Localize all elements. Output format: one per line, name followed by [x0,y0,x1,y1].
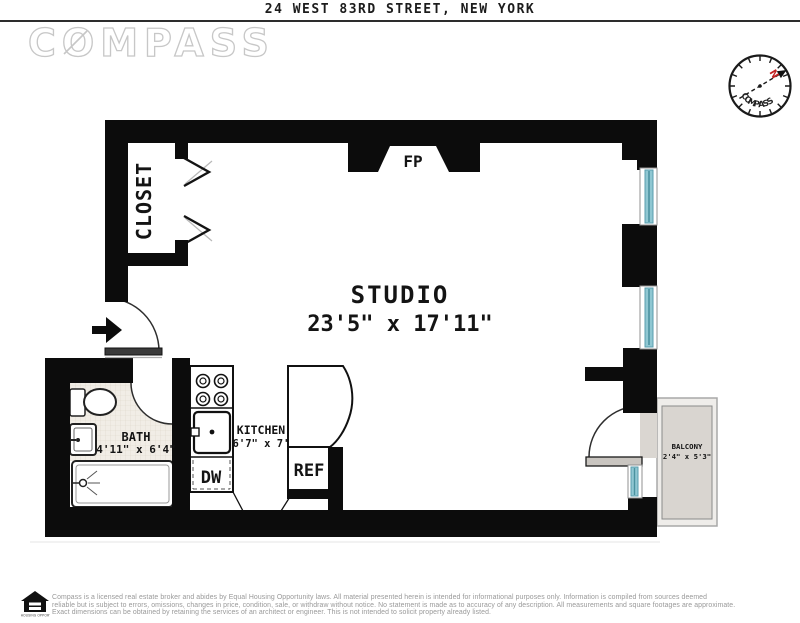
window-3 [628,465,642,498]
wall-refrigerator-right [328,447,343,513]
floor-plan-page: 24 WEST 83RD STREET, NEW YORK COMPASS N … [0,0,800,623]
dishwasher-label: DW [201,468,222,488]
kitchen-sink [191,412,230,453]
wall-bath-top [45,358,133,383]
disclaimer-line: Exact dimensions can be obtained by reta… [52,609,792,617]
wall-refrigerator-bottom [287,490,343,499]
balcony-door-swing [589,406,640,457]
wall-top [105,120,657,143]
wall-bath-kitchen [172,358,190,513]
wall-left-upper [105,120,128,302]
kitchen-label: KITCHEN [237,423,286,437]
bath-sink [66,424,96,455]
bath-dimensions: 4'11" x 6'4" [96,443,175,456]
disclaimer-line: reliable but is subject to errors, omiss… [52,602,792,610]
window-1 [640,168,657,225]
balcony-door-opening [640,413,657,458]
wall-bottom [45,510,657,537]
equal-housing-logo: EQUAL HOUSING OPPORTUNITY [20,590,50,620]
studio-label: STUDIO [351,281,450,309]
bathtub [72,461,173,507]
floor-plan-drawing: COMPASS N C O M P A S S [0,0,800,580]
toilet [70,389,116,416]
balcony-label: BALCONY [672,442,703,451]
balcony [657,398,717,526]
balcony-dimensions: 2'4" x 5'3" [663,452,711,461]
wall-stub-balcony [585,367,623,381]
entry-door [105,348,162,358]
disclaimer-line: Compass is a licensed real estate broker… [52,594,792,602]
compass-logo-text: COMPASS [28,21,275,65]
bath-label: BATH [122,430,151,444]
wall-right-notch [622,143,637,160]
fireplace-label: FP [403,152,422,171]
entry-arrow-icon [92,317,122,343]
wall-right-top [637,120,657,170]
closet-jamb-top [175,143,188,159]
closet-wall-bottom [128,253,188,266]
compass-rose: N C O M P A S S [730,56,791,117]
refrigerator-label: REF [294,461,325,481]
equal-housing-label: EQUAL HOUSING OPPORTUNITY [20,614,50,618]
wall-right-pier-1 [622,224,657,287]
studio-dimensions: 23'5" x 17'11" [307,312,492,337]
disclaimer: Compass is a licensed real estate broker… [52,594,792,617]
closet-bifold-doors [184,158,212,244]
kitchen-dimensions: 6'7" x 7' [233,438,290,450]
closet-label: CLOSET [132,162,156,240]
compass-logo: COMPASS [28,21,275,65]
window-2 [640,286,657,349]
wall-right-pier-2 [623,348,657,413]
kitchen-opening-jamb-left [233,492,243,511]
